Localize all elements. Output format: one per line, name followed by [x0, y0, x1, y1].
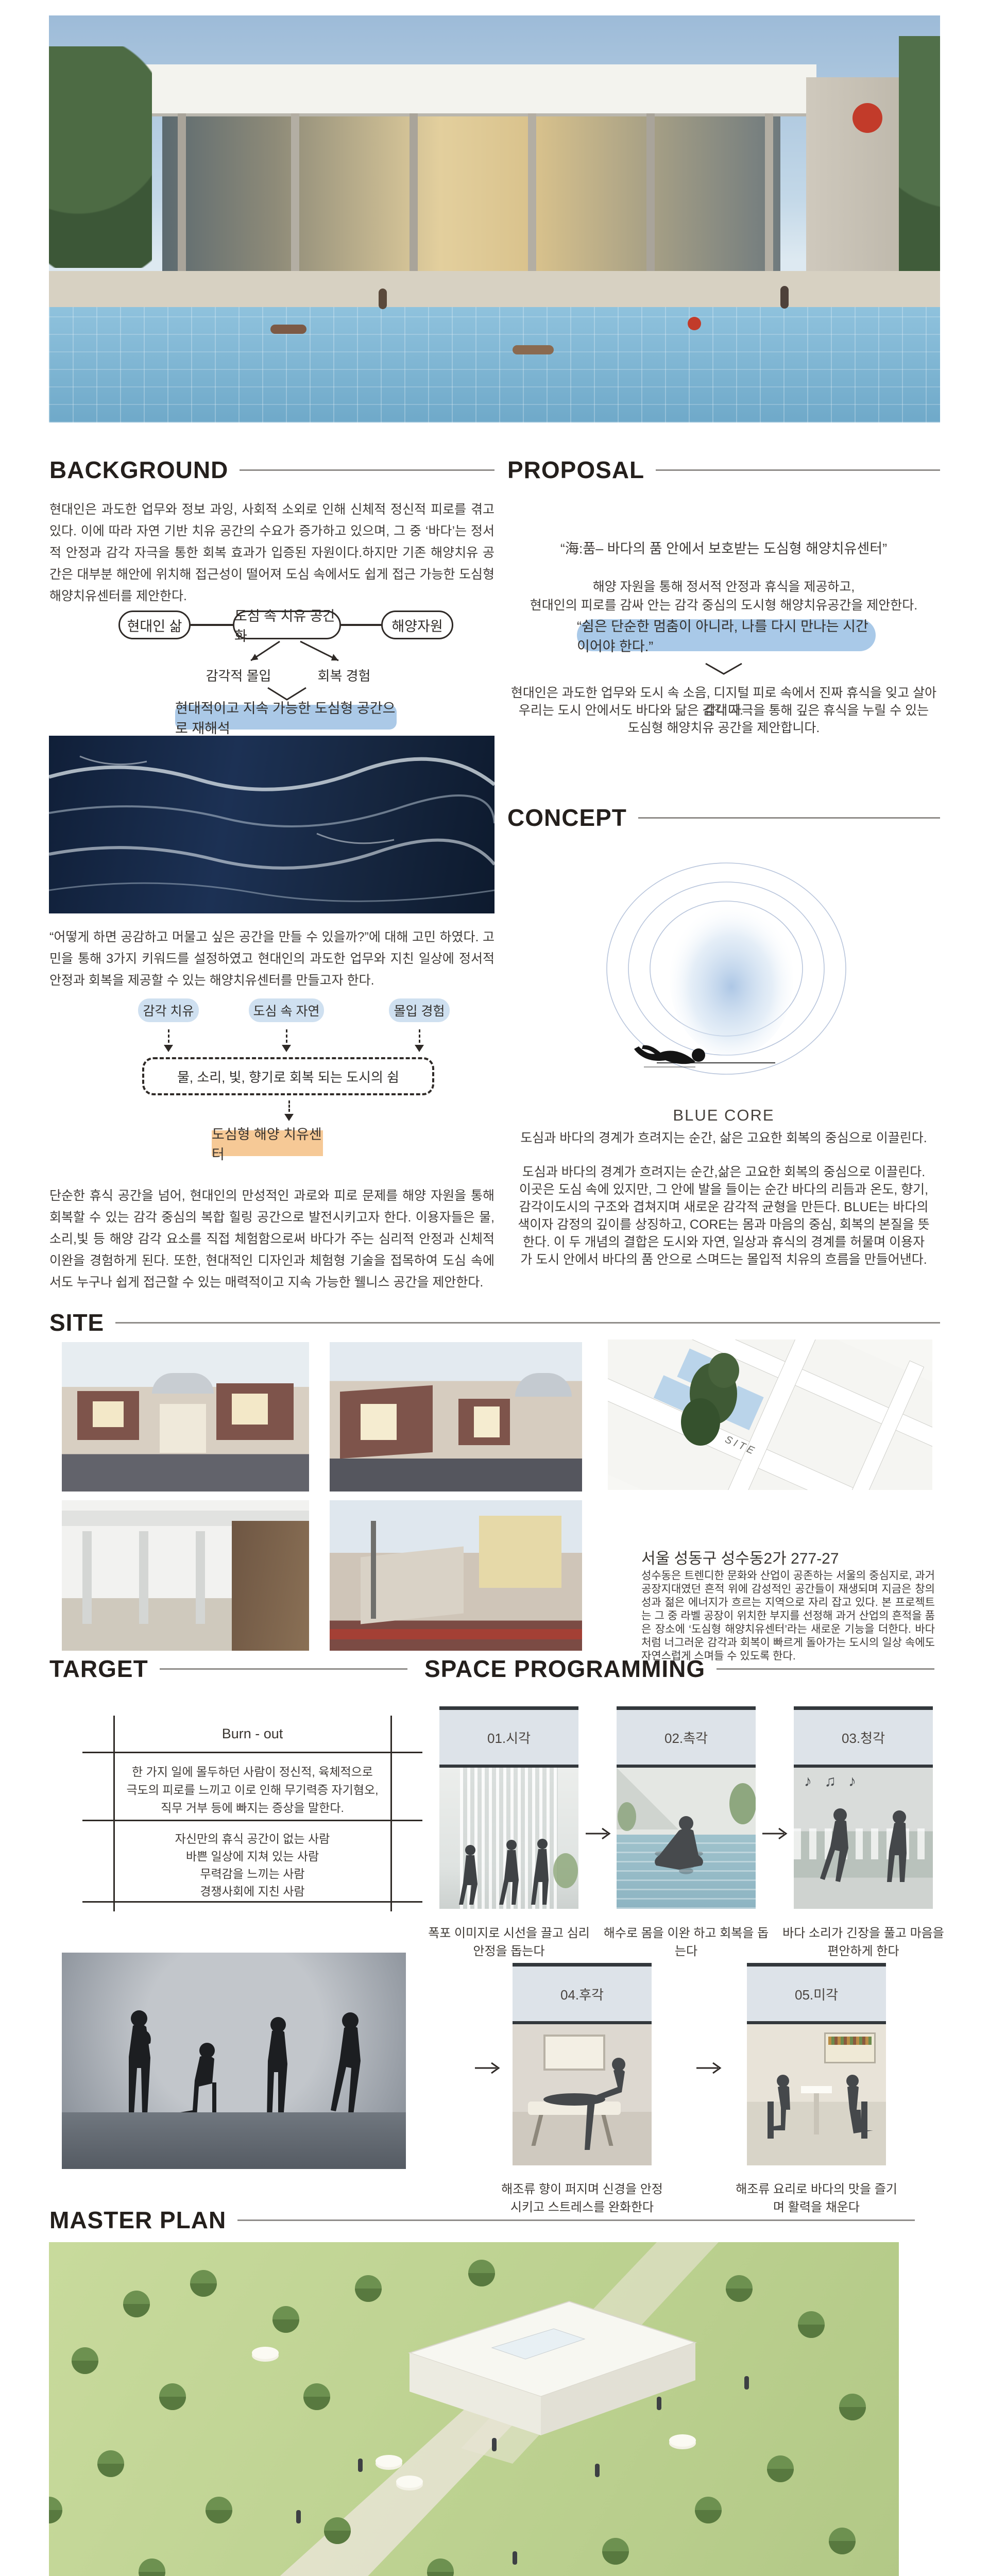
site-photo-3: [62, 1500, 309, 1651]
arrow-head-1: [164, 1045, 173, 1052]
site-photo-1: [62, 1342, 309, 1492]
proposal-paragraph-line-2: 우리는 도시 안에서도 바다와 닮은 감각 자극을 통해 깊은 휴식을 누릴 수…: [507, 702, 940, 719]
site-section-heading: SITE: [49, 1309, 940, 1336]
background-paragraph-3: 단순한 휴식 공간을 넘어, 현대인의 만성적인 과로와 피로 문제를 해양 자…: [49, 1185, 494, 1293]
burnout-desc-line-3: 직무 거부 등에 빠지는 증상을 말한다.: [113, 1799, 391, 1817]
target-title: TARGET: [49, 1655, 148, 1683]
proposal-rule: [656, 469, 940, 471]
ocean-foam: [49, 736, 494, 913]
arrow-right-icon: [585, 1826, 612, 1841]
space-panel-sight: 01.시각: [439, 1706, 578, 1909]
site-photo-2: [330, 1342, 582, 1492]
panel-label-touch: 02.촉각: [617, 1710, 756, 1765]
flow-box-urban-healing: 도심 속 치유 공간화: [233, 611, 341, 639]
concept-graphic: [541, 858, 907, 1079]
dashed-arrow-4: [288, 1100, 290, 1112]
dashed-summary-box: 물, 소리, 빛, 향기로 회복 되는 도시의 쉼: [142, 1057, 434, 1095]
flow-label-sensory: 감각적 몰입: [206, 666, 271, 685]
burnout-list-item: 자신만의 휴식 공간이 없는 사람: [113, 1830, 391, 1848]
burnout-desc-line-1: 한 가지 일에 몰두하던 사람이 정신적, 육체적으로: [113, 1763, 391, 1781]
space-panel-touch: 02.촉각: [617, 1706, 756, 1909]
panel-image-sight: [439, 1768, 578, 1909]
hero-people: [49, 15, 940, 422]
arrow-right-icon: [474, 2061, 502, 2075]
presentation-board: BACKGROUND 현대인은 과도한 업무와 정보 과잉, 사회적 소외로 인…: [0, 0, 989, 2576]
space-rule: [717, 1668, 934, 1670]
target-photo: [62, 1953, 406, 2169]
proposal-line-1: 해양 자원을 통해 정서적 안정과 휴식을 제공하고,: [507, 578, 940, 596]
burnout-desc-line-2: 극도의 피로를 느끼고 이로 인해 무기력증 자기혐오,: [113, 1781, 391, 1799]
arrow-right-icon: [695, 2061, 723, 2075]
panel-image-smell: [513, 2024, 652, 2165]
burnout-list-item: 무력감을 느끼는 사람: [113, 1865, 391, 1883]
orange-result-box: 도심형 해양 치유센터: [212, 1130, 323, 1156]
space-panel-hearing: 03.청각 ♪ ♫ ♪: [794, 1706, 933, 1909]
concept-paragraph: 도심과 바다의 경계가 흐려지는 순간,삶은 고요한 회복의 중심으로 이끌린다…: [518, 1163, 930, 1268]
panel-top-bar: [747, 1963, 886, 1967]
panel-label-smell: 04.후각: [513, 1967, 652, 2021]
master-plan-image: [49, 2242, 899, 2576]
keyword-pill-nature: 도심 속 자연: [249, 998, 324, 1022]
burnout-list: 자신만의 휴식 공간이 없는 사람 바쁜 일상에 지쳐 있는 사람 무력감을 느…: [113, 1830, 391, 1900]
panel-image-taste: [747, 2024, 886, 2165]
site-map: SITE: [608, 1340, 932, 1490]
proposal-blue-quote: “쉼은 단순한 멈춤이 아니라, 나를 다시 만나는 시간이어야 한다.”: [577, 619, 876, 651]
space-caption-touch: 해수로 몸을 이완 하고 회복을 돕는다: [601, 1924, 771, 1960]
dashed-arrow-2: [286, 1029, 287, 1043]
panel-image-touch: [617, 1768, 756, 1909]
background-flow-diagram: 현대인 삶 도심 속 치유 공간화 해양자원 감각적 몰입 회복 경험 현대적이…: [49, 592, 494, 732]
master-title: MASTER PLAN: [49, 2206, 226, 2234]
burnout-title: Burn - out: [113, 1726, 391, 1742]
panel-label-taste: 05.미각: [747, 1967, 886, 2021]
keyword-pill-sensory: 감각 치유: [138, 998, 199, 1022]
site-title: SITE: [49, 1309, 104, 1336]
site-rule: [115, 1322, 940, 1324]
concept-core-subtitle: 도심과 바다의 경계가 흐려지는 순간, 삶은 고요한 회복의 중심으로 이끌린…: [507, 1129, 940, 1147]
concept-title: CONCEPT: [507, 804, 627, 832]
space-caption-hearing: 바다 소리가 긴장을 풀고 마음을 편안하게 한다: [778, 1924, 948, 1960]
arrow-right-icon: [761, 1826, 789, 1841]
master-rule: [237, 2219, 915, 2221]
dashed-arrow-3: [419, 1029, 420, 1043]
site-photo-4: [330, 1500, 582, 1651]
concept-rule: [638, 817, 940, 819]
keyword-pill-immersion: 몰입 경험: [389, 998, 450, 1022]
panel-top-bar: [439, 1706, 578, 1710]
flow-label-recovery: 회복 경험: [318, 666, 371, 685]
panel-image-hearing: ♪ ♫ ♪: [794, 1768, 933, 1909]
master-section-heading: MASTER PLAN: [49, 2206, 915, 2234]
background-paragraph-2: “어떻게 하면 공감하고 머물고 싶은 공간을 만들 수 있을까?”에 대해 고…: [49, 926, 494, 991]
background-title: BACKGROUND: [49, 456, 228, 484]
target-section-heading: TARGET: [49, 1655, 407, 1683]
burnout-desc: 한 가지 일에 몰두하던 사람이 정신적, 육체적으로 극도의 피로를 느끼고 …: [113, 1763, 391, 1817]
space-section-heading: SPACE PROGRAMMING: [424, 1655, 934, 1683]
arrow-head-2: [282, 1045, 291, 1052]
panel-top-bar: [513, 1963, 652, 1967]
panel-top-bar: [794, 1706, 933, 1710]
arrow-head-3: [415, 1045, 424, 1052]
panel-label-sight: 01.시각: [439, 1710, 578, 1765]
site-address: 서울 성동구 성수동2가 277-27: [641, 1546, 839, 1568]
background-section-heading: BACKGROUND: [49, 456, 494, 484]
concept-core-title: BLUE CORE: [507, 1107, 940, 1124]
flow-box-marine-resource: 해양자원: [381, 611, 453, 639]
proposal-section-heading: PROPOSAL: [507, 456, 940, 484]
ocean-photo: [49, 736, 494, 913]
flow-box-modern-life: 현대인 삶: [118, 611, 191, 639]
proposal-paragraph-line-3: 도심형 해양치유 공간을 제안합니다.: [507, 719, 940, 737]
hero-render-image: [49, 15, 940, 422]
panel-top-bar: [617, 1706, 756, 1710]
background-paragraph-1: 현대인은 과도한 업무와 정보 과잉, 사회적 소외로 인해 신체적 정신적 피…: [49, 499, 494, 607]
space-panel-smell: 04.후각: [513, 1963, 652, 2165]
proposal-line-2: 현대인의 피로를 감싸 안는 감각 중심의 도시형 해양치유공간을 제안한다.: [507, 597, 940, 614]
space-panel-taste: 05.미각: [747, 1963, 886, 2165]
panel-label-hearing: 03.청각: [794, 1710, 933, 1765]
proposal-title: PROPOSAL: [507, 456, 644, 484]
concept-section-heading: CONCEPT: [507, 804, 940, 832]
target-rule: [160, 1668, 407, 1670]
space-caption-sight: 폭포 이미지로 시선을 끌고 심리 안정을 돕는다: [424, 1924, 594, 1960]
burnout-list-item: 바쁜 일상에 지쳐 있는 사람: [113, 1848, 391, 1865]
space-title: SPACE PROGRAMMING: [424, 1655, 705, 1683]
dashed-arrow-1: [168, 1029, 169, 1043]
arrow-head-4: [284, 1114, 294, 1121]
chevron-down-icon: [703, 661, 744, 676]
burnout-table: Burn - out 한 가지 일에 몰두하던 사람이 정신적, 육체적으로 극…: [82, 1716, 422, 1911]
burnout-list-item: 경쟁사회에 지친 사람: [113, 1883, 391, 1900]
proposal-quote: “海:품– 바다의 품 안에서 보호받는 도심형 해양치유센터”: [507, 540, 940, 557]
site-paragraph: 성수동은 트렌디한 문화와 산업이 공존하는 서울의 중심지로, 과거 공장지대…: [641, 1569, 935, 1663]
background-rule: [240, 469, 494, 471]
flow-result-pill: 현대적이고 지속 가능한 도심형 공간으로 재해석: [175, 705, 397, 730]
